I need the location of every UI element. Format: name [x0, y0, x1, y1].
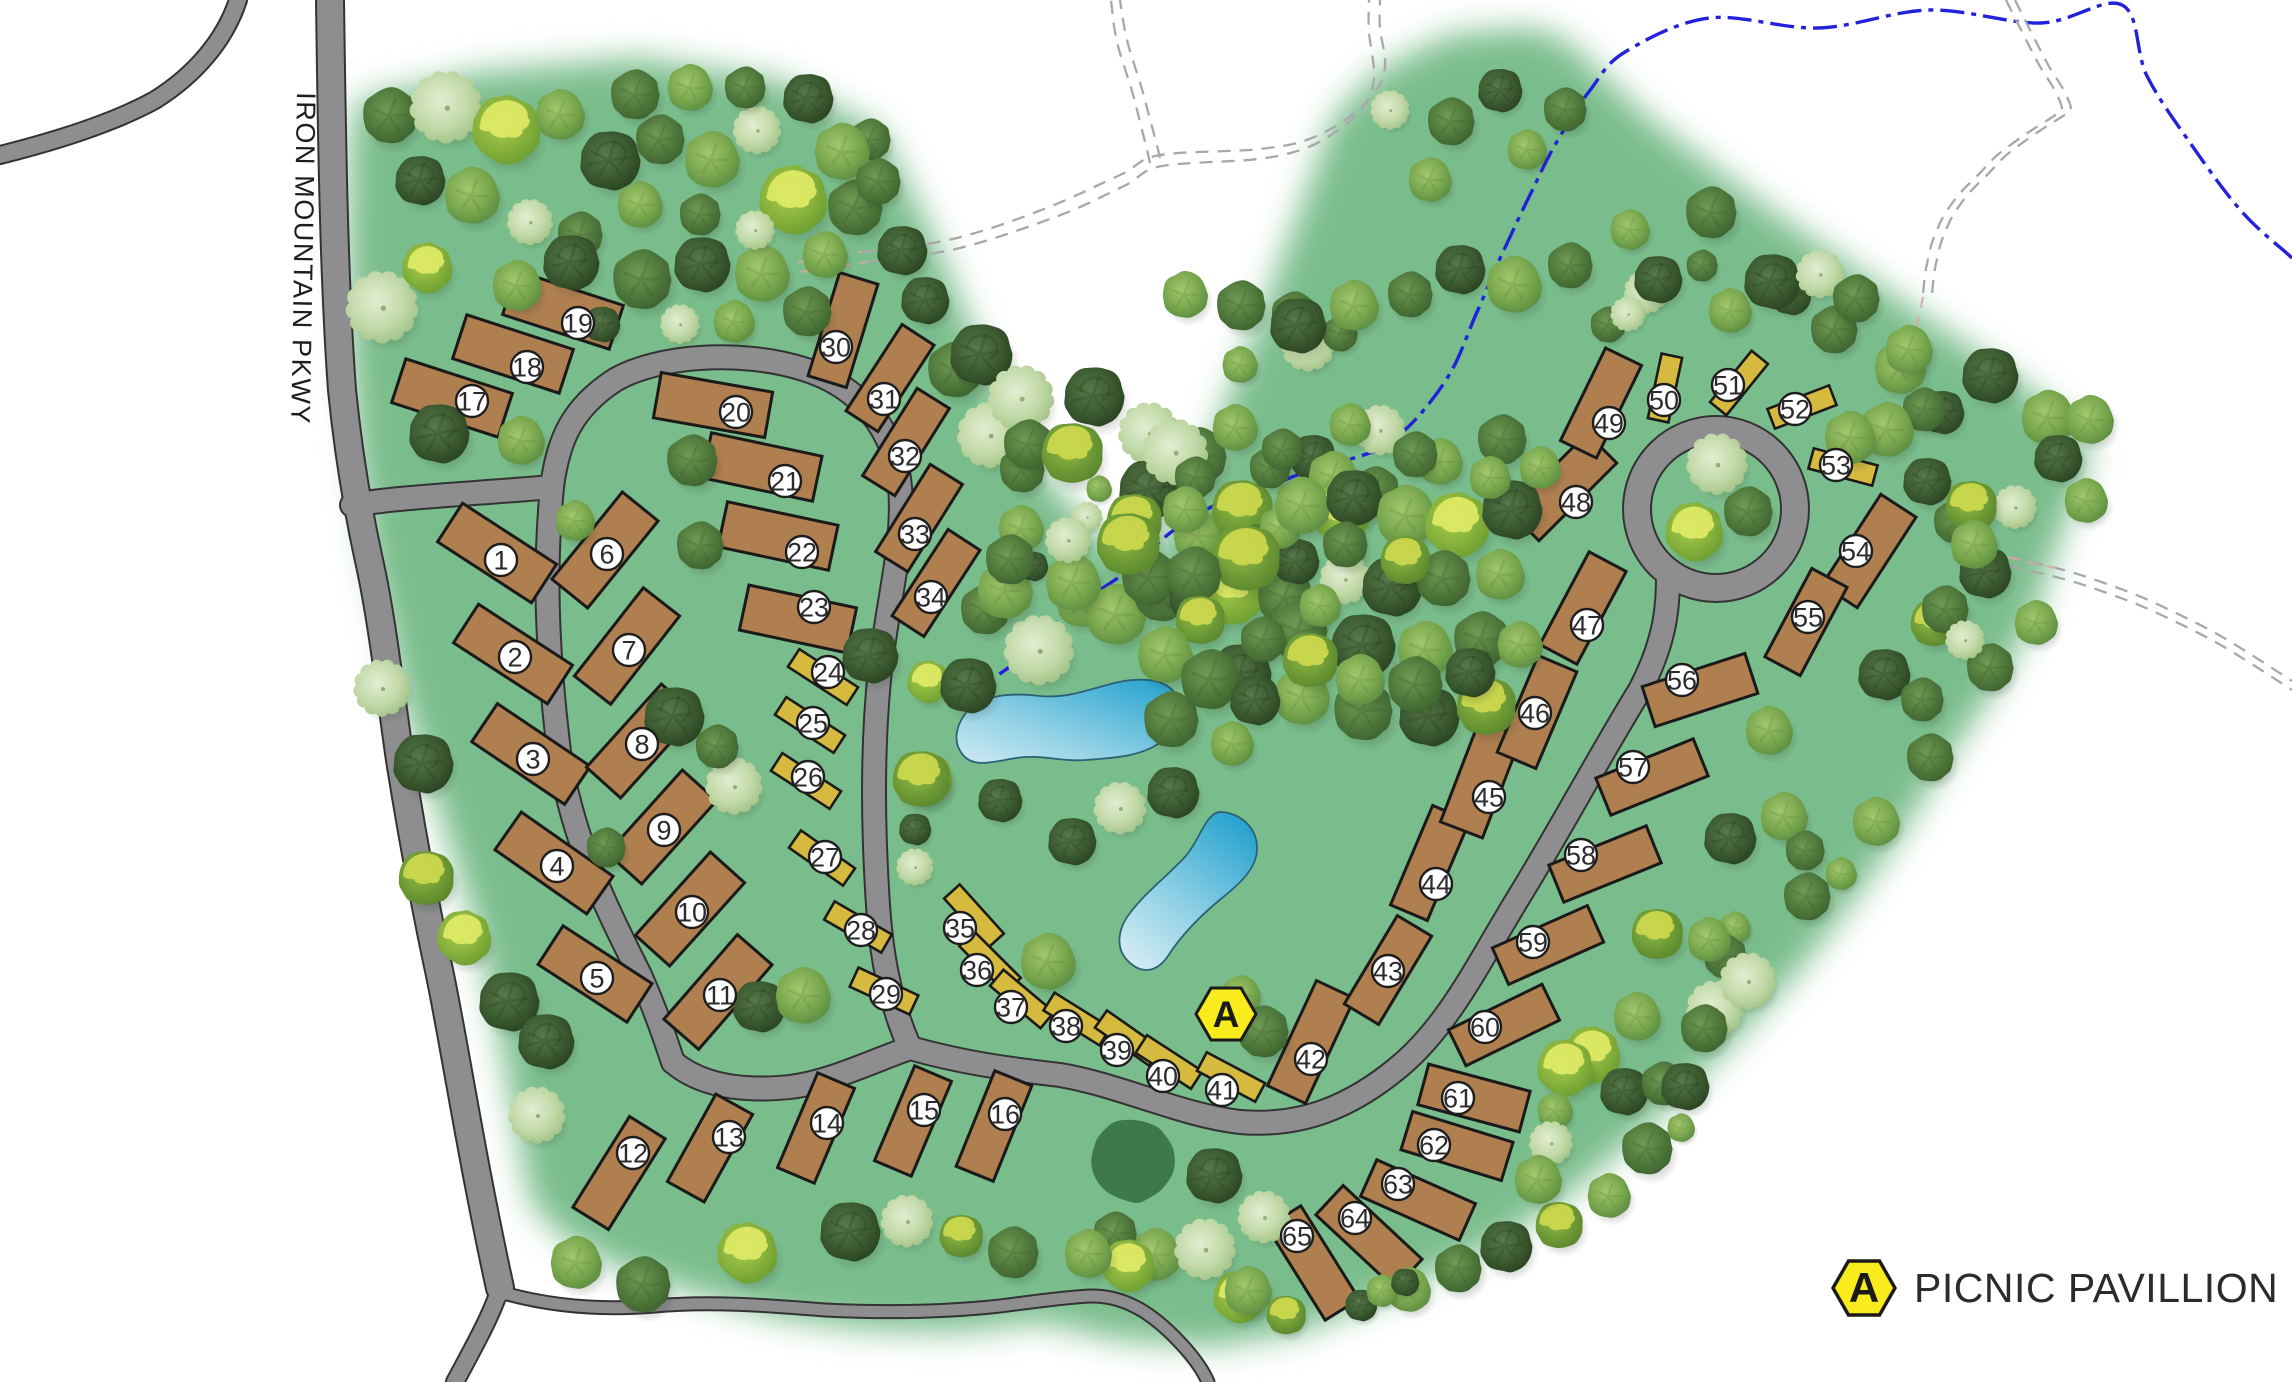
svg-text:61: 61 — [1443, 1084, 1473, 1114]
svg-text:56: 56 — [1667, 666, 1697, 696]
svg-text:23: 23 — [799, 593, 829, 623]
svg-text:30: 30 — [821, 333, 851, 363]
svg-text:15: 15 — [909, 1096, 939, 1126]
svg-text:A: A — [1849, 1264, 1879, 1311]
svg-text:4: 4 — [549, 852, 564, 882]
svg-text:18: 18 — [512, 353, 542, 383]
svg-text:12: 12 — [618, 1139, 648, 1169]
svg-text:2: 2 — [507, 643, 522, 673]
svg-text:9: 9 — [656, 816, 671, 846]
svg-text:14: 14 — [812, 1109, 842, 1139]
svg-text:64: 64 — [1340, 1204, 1370, 1234]
svg-text:51: 51 — [1713, 371, 1743, 401]
svg-text:IRON MOUNTAIN PKWY: IRON MOUNTAIN PKWY — [285, 92, 321, 425]
svg-text:60: 60 — [1470, 1013, 1500, 1043]
svg-text:19: 19 — [563, 309, 593, 339]
svg-text:27: 27 — [810, 843, 840, 873]
svg-text:13: 13 — [714, 1123, 744, 1153]
svg-text:53: 53 — [1821, 451, 1851, 481]
svg-text:21: 21 — [770, 467, 800, 497]
svg-text:38: 38 — [1051, 1012, 1081, 1042]
svg-text:42: 42 — [1296, 1045, 1326, 1075]
svg-text:59: 59 — [1518, 928, 1548, 958]
svg-text:A: A — [1213, 994, 1240, 1035]
svg-text:48: 48 — [1561, 488, 1591, 518]
svg-text:22: 22 — [787, 538, 817, 568]
svg-text:26: 26 — [793, 763, 823, 793]
svg-text:11: 11 — [706, 981, 734, 1011]
svg-text:29: 29 — [871, 980, 901, 1010]
svg-text:49: 49 — [1594, 409, 1624, 439]
svg-text:34: 34 — [916, 583, 946, 613]
svg-text:52: 52 — [1780, 395, 1810, 425]
svg-text:17: 17 — [457, 387, 487, 417]
svg-text:6: 6 — [599, 540, 614, 570]
svg-text:3: 3 — [525, 745, 540, 775]
svg-text:50: 50 — [1649, 386, 1679, 416]
svg-text:36: 36 — [962, 956, 992, 986]
svg-text:55: 55 — [1793, 603, 1823, 633]
svg-text:43: 43 — [1373, 957, 1403, 987]
svg-text:10: 10 — [677, 898, 707, 928]
svg-text:57: 57 — [1618, 753, 1648, 783]
svg-text:37: 37 — [996, 993, 1026, 1023]
svg-text:7: 7 — [621, 636, 636, 666]
svg-text:40: 40 — [1148, 1062, 1178, 1092]
svg-text:33: 33 — [900, 520, 930, 550]
svg-text:39: 39 — [1102, 1036, 1132, 1066]
svg-text:1: 1 — [493, 546, 508, 576]
svg-text:65: 65 — [1282, 1222, 1312, 1252]
svg-text:47: 47 — [1572, 611, 1602, 641]
svg-text:16: 16 — [990, 1100, 1020, 1130]
svg-text:63: 63 — [1383, 1170, 1413, 1200]
svg-text:41: 41 — [1207, 1076, 1237, 1106]
svg-text:32: 32 — [890, 442, 920, 472]
svg-text:5: 5 — [589, 964, 604, 994]
svg-text:8: 8 — [634, 730, 649, 760]
svg-text:35: 35 — [945, 914, 975, 944]
svg-text:58: 58 — [1566, 841, 1596, 871]
svg-text:62: 62 — [1419, 1131, 1449, 1161]
svg-text:54: 54 — [1841, 537, 1871, 567]
svg-text:45: 45 — [1474, 783, 1504, 813]
svg-text:31: 31 — [869, 385, 899, 415]
svg-text:20: 20 — [721, 398, 751, 428]
svg-text:PICNIC PAVILLION: PICNIC PAVILLION — [1914, 1265, 2278, 1311]
svg-text:24: 24 — [813, 658, 843, 688]
svg-text:25: 25 — [798, 709, 828, 739]
svg-text:28: 28 — [846, 916, 876, 946]
svg-text:44: 44 — [1421, 870, 1451, 900]
svg-text:46: 46 — [1520, 699, 1550, 729]
